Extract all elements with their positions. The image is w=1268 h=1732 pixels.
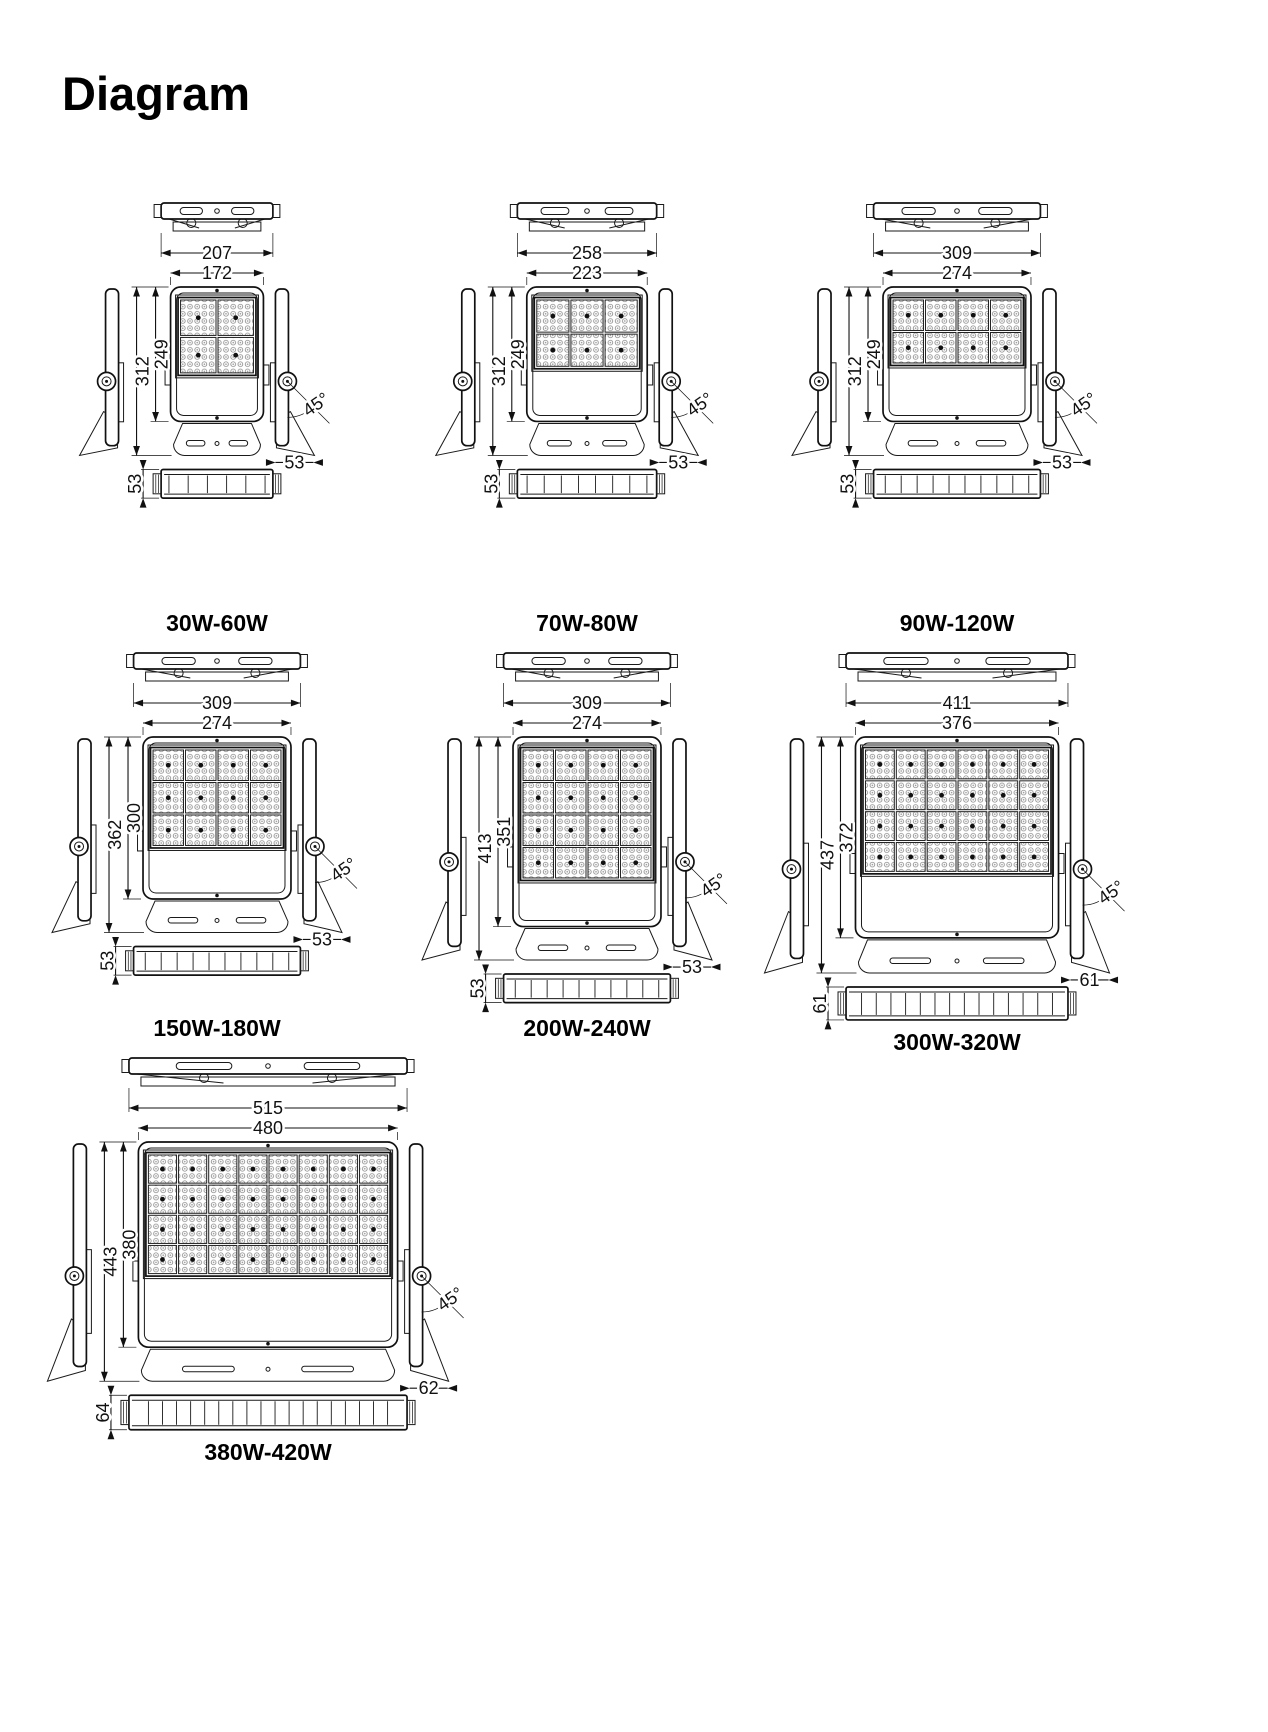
dim-outer-width: 309	[134, 693, 301, 713]
led-center-dot	[536, 795, 541, 800]
screw	[266, 1342, 270, 1346]
side-blade	[790, 739, 803, 958]
dim-label: 274	[572, 713, 602, 733]
dim-label: 411	[943, 693, 972, 713]
dim-bottom-height: 53	[125, 460, 146, 508]
led-center-dot	[251, 1197, 256, 1202]
side-blade	[303, 739, 316, 921]
led-center-dot	[1003, 313, 1008, 318]
led-center-dot	[251, 1167, 256, 1172]
screw	[585, 289, 589, 293]
dim-label: 249	[508, 339, 528, 369]
dim-label: 53	[98, 951, 118, 971]
dim-arrow	[697, 459, 707, 466]
dim-arrow	[120, 1142, 127, 1152]
side-blade	[462, 289, 475, 446]
led-center-dot	[1001, 762, 1006, 767]
led-center-dot	[939, 855, 944, 860]
end-knob	[300, 951, 308, 971]
dim-arrow	[171, 270, 181, 277]
mounting-foot	[146, 901, 288, 932]
dim-arrow	[254, 270, 264, 277]
led-center-dot	[1032, 762, 1037, 767]
dim-arrow	[711, 964, 721, 971]
dim-label: 312	[489, 356, 509, 386]
dim-inner-height: 300	[124, 737, 144, 899]
dim-arrow	[1081, 459, 1091, 466]
model-label: 380W-420W	[204, 1439, 332, 1465]
led-center-dot	[938, 313, 943, 318]
end-cap	[657, 205, 664, 218]
dim-arrow	[508, 412, 515, 422]
dim-label: 53	[682, 957, 702, 977]
mounting-foot	[516, 929, 658, 960]
led-center-dot	[166, 795, 171, 800]
diagram-cell-200w-240w: 30927441335145°5353200W-240W	[398, 645, 770, 1050]
dim-arrow	[263, 250, 273, 257]
led-center-dot	[601, 763, 606, 768]
led-center-dot	[190, 1257, 195, 1262]
diagram-drawing: 20717231224945°535330W-60W	[28, 195, 400, 645]
dim-label: 64	[93, 1402, 113, 1422]
dim-arrow	[101, 1142, 108, 1152]
dim-arrow	[161, 250, 171, 257]
foot-slot	[168, 917, 198, 923]
led-center-dot	[971, 313, 976, 318]
led-center-dot	[1032, 855, 1037, 860]
dim-arrow	[313, 459, 323, 466]
dim-label: 258	[572, 243, 602, 263]
bottom-view	[866, 469, 1049, 498]
bracket-bar	[129, 1058, 407, 1074]
led-center-dot	[878, 855, 883, 860]
dim-label: 53	[481, 474, 501, 494]
bottom-view	[126, 946, 309, 975]
bracket-bar	[134, 653, 301, 669]
led-center-dot	[190, 1227, 195, 1232]
foot-slot	[538, 945, 568, 951]
end-knob	[866, 474, 874, 494]
dim-inner-height: 249	[152, 287, 172, 421]
end-cap	[510, 205, 517, 218]
led-center-dot	[1032, 793, 1037, 798]
screw	[955, 441, 959, 445]
led-center-dot	[906, 313, 911, 318]
dim-label: 309	[202, 693, 232, 713]
dim-arrow	[152, 287, 159, 297]
dim-label: 45°	[1067, 388, 1101, 420]
dim-inner-width: 274	[143, 713, 291, 733]
dim-arrow	[496, 460, 503, 470]
dim-arrow	[837, 737, 844, 747]
dim-outer-height: 312	[489, 287, 509, 455]
led-center-dot	[341, 1257, 346, 1262]
dim-arrow	[489, 446, 496, 456]
dim-label: 380	[119, 1230, 139, 1260]
led-center-dot	[536, 763, 541, 768]
dim-arrow	[504, 700, 514, 707]
dim-outer-height: 312	[845, 287, 865, 455]
led-center-dot	[568, 763, 573, 768]
dim-label: 515	[253, 1098, 283, 1118]
dim-arrow	[852, 460, 859, 470]
led-center-dot	[550, 314, 555, 319]
end-cap	[1040, 205, 1047, 218]
dim-inner-height: 249	[508, 287, 528, 421]
screw	[215, 739, 219, 743]
dim-arrow	[106, 923, 113, 933]
screw	[266, 1367, 270, 1371]
dim-arrow	[266, 459, 276, 466]
dim-arrow	[846, 700, 856, 707]
diagram-drawing: 30927431224945°535390W-120W	[768, 195, 1140, 645]
led-center-dot	[601, 795, 606, 800]
led-center-dot	[971, 345, 976, 350]
led-center-dot	[190, 1197, 195, 1202]
left-side-view	[422, 739, 466, 960]
dim-outer-width: 515	[129, 1098, 407, 1118]
led-center-dot	[1003, 345, 1008, 350]
led-center-dot	[371, 1257, 376, 1262]
foot-slot	[603, 440, 627, 446]
dim-arrow	[865, 412, 872, 422]
screw	[215, 416, 219, 420]
dim-inner-height: 351	[494, 737, 514, 927]
drawing-root: 30927441335145°5353	[422, 653, 730, 1012]
dim-label: 312	[133, 356, 153, 386]
dim-arrow	[112, 937, 119, 947]
mounting-foot	[530, 423, 644, 455]
foot-slot	[606, 945, 636, 951]
led-center-dot	[166, 763, 171, 768]
dim-arrow	[143, 720, 153, 727]
led-center-dot	[908, 793, 913, 798]
side-blade	[73, 1144, 86, 1366]
bottom-view	[509, 469, 664, 498]
led-center-dot	[311, 1167, 316, 1172]
led-center-dot	[263, 795, 268, 800]
led-center-dot	[160, 1227, 165, 1232]
led-center-dot	[878, 762, 883, 767]
model-label: 200W-240W	[523, 1015, 651, 1041]
dim-outer-width: 411	[846, 693, 1068, 713]
led-center-dot	[231, 763, 236, 768]
screw	[215, 441, 219, 445]
dim-label: 45°	[683, 388, 717, 420]
page: Diagram 20717231224945°535330W-60W 25822…	[0, 0, 1268, 1732]
screw	[955, 416, 959, 420]
led-center-dot	[633, 828, 638, 833]
page-title: Diagram	[62, 66, 250, 121]
led-center-dot	[1001, 855, 1006, 860]
foot-slot	[890, 958, 931, 964]
dim-inner-width: 223	[527, 263, 647, 283]
top-view	[510, 203, 663, 231]
diagram-drawing: 41137643737245°6161300W-320W	[768, 645, 1140, 1050]
bottom-view	[121, 1395, 415, 1430]
dim-label: 249	[152, 339, 172, 369]
led-center-dot	[198, 795, 203, 800]
screw	[955, 739, 959, 743]
dim-inner-width: 274	[513, 713, 661, 733]
dim-label: 309	[942, 243, 972, 263]
led-center-dot	[585, 348, 590, 353]
dim-label: 413	[475, 833, 495, 863]
led-center-dot	[939, 824, 944, 829]
top-view	[154, 203, 280, 231]
dim-arrow	[134, 700, 144, 707]
dim-outer-height: 312	[133, 287, 153, 455]
end-knob	[838, 992, 846, 1015]
dim-label: 53	[125, 474, 145, 494]
diagram-drawing: 51548044338045°6264380W-420W	[30, 1050, 500, 1470]
drawing-root: 51548044338045°6264	[47, 1058, 467, 1439]
top-view	[497, 653, 678, 681]
dim-label: 376	[942, 713, 972, 733]
drawing-root: 25822331224945°5353	[436, 203, 717, 508]
dim-arrow	[398, 1105, 408, 1112]
dim-arrow	[517, 250, 527, 257]
led-center-dot	[371, 1227, 376, 1232]
led-center-dot	[619, 314, 624, 319]
dim-label: 274	[942, 263, 972, 283]
right-side-view	[298, 739, 342, 932]
dim-label: 443	[100, 1247, 120, 1277]
side-blade	[410, 1144, 423, 1366]
dim-inner-width: 274	[883, 263, 1031, 283]
right-side-view	[1038, 289, 1082, 455]
led-center-dot	[568, 860, 573, 865]
led-center-dot	[198, 828, 203, 833]
dim-arrow	[482, 965, 489, 975]
bracket-bar	[517, 203, 656, 219]
side-blade	[1071, 739, 1084, 958]
left-side-view	[80, 289, 124, 455]
diagram-drawing: 25822331224945°535370W-80W	[398, 195, 770, 645]
foot-slot	[547, 440, 571, 446]
dim-outer-height: 413	[475, 737, 495, 960]
screw	[585, 921, 589, 925]
top-view	[127, 653, 308, 681]
dim-label: 172	[202, 263, 232, 283]
left-side-view	[436, 289, 480, 455]
led-center-dot	[970, 855, 975, 860]
diagram-cell-150w-180w: 30927436230045°5353150W-180W	[28, 645, 400, 1050]
diagram-cell-90w-120w: 30927431224945°535390W-120W	[768, 195, 1140, 645]
led-center-dot	[906, 345, 911, 350]
foot-slot	[302, 1366, 354, 1372]
dim-label: 309	[572, 693, 602, 713]
dim-outer-width: 309	[874, 243, 1041, 263]
dim-arrow	[291, 700, 301, 707]
left-side-view	[47, 1144, 91, 1381]
led-center-dot	[908, 762, 913, 767]
led-center-dot	[220, 1197, 225, 1202]
led-center-dot	[939, 762, 944, 767]
dim-inner-width: 376	[855, 713, 1058, 733]
dim-outer-width: 309	[504, 693, 671, 713]
dim-arrow	[846, 446, 853, 456]
foot-slot	[976, 440, 1006, 446]
dim-label: 53	[468, 978, 488, 998]
dim-label: 480	[253, 1118, 283, 1138]
drawing-root: 30927431224945°5353	[792, 203, 1100, 508]
led-center-dot	[908, 855, 913, 860]
dim-outer-width: 207	[161, 243, 273, 263]
dim-label: 45°	[1094, 876, 1128, 908]
front-body	[138, 1142, 397, 1347]
led-center-dot	[190, 1167, 195, 1172]
dim-label: 207	[202, 243, 232, 263]
led-center-dot	[196, 353, 201, 358]
dim-arrow	[865, 287, 872, 297]
diagram-cell-30w-60w: 20717231224945°535330W-60W	[28, 195, 400, 645]
dim-arrow	[133, 446, 140, 456]
dim-arrow	[108, 1386, 115, 1396]
top-view	[867, 203, 1048, 231]
led-center-dot	[970, 762, 975, 767]
right-side-view	[654, 289, 698, 455]
led-center-dot	[160, 1167, 165, 1172]
dim-arrow	[101, 1372, 108, 1382]
dim-label: 351	[494, 817, 514, 847]
dim-label: 45°	[327, 854, 361, 886]
dim-arrow	[482, 1003, 489, 1013]
foot-slot	[186, 440, 205, 446]
dim-arrow	[400, 1385, 410, 1392]
left-side-view	[792, 289, 836, 455]
model-label: 90W-120W	[900, 610, 1015, 636]
end-knob	[496, 978, 504, 998]
dim-arrow	[129, 1105, 139, 1112]
led-center-dot	[251, 1227, 256, 1232]
dim-arrow	[495, 737, 502, 747]
dim-arrow	[1058, 700, 1068, 707]
led-center-dot	[908, 824, 913, 829]
mounting-foot	[141, 1349, 394, 1381]
dim-outer-width: 258	[517, 243, 656, 263]
dim-arrow	[448, 1385, 458, 1392]
dim-arrow	[106, 737, 113, 747]
led-center-dot	[601, 828, 606, 833]
side-blade	[275, 289, 288, 446]
end-knob	[273, 474, 281, 494]
led-center-dot	[633, 763, 638, 768]
diagram-drawing: 30927436230045°5353150W-180W	[28, 645, 400, 1050]
bracket-bar	[504, 653, 671, 669]
end-knob	[1068, 992, 1076, 1015]
end-cap	[1068, 655, 1075, 668]
led-center-dot	[878, 793, 883, 798]
led-center-dot	[585, 314, 590, 319]
end-knob	[657, 474, 665, 494]
led-center-dot	[231, 795, 236, 800]
dim-arrow	[825, 977, 832, 987]
mounting-foot	[174, 423, 261, 455]
end-knob	[1040, 474, 1048, 494]
dim-arrow	[112, 975, 119, 985]
dim-arrow	[152, 412, 159, 422]
dim-arrow	[508, 287, 515, 297]
led-center-dot	[1032, 824, 1037, 829]
dim-outer-height: 443	[100, 1142, 120, 1381]
model-label: 70W-80W	[536, 610, 638, 636]
led-center-dot	[263, 763, 268, 768]
dim-arrow	[496, 498, 503, 508]
led-center-dot	[938, 345, 943, 350]
led-center-dot	[1001, 793, 1006, 798]
led-center-dot	[536, 828, 541, 833]
screw	[955, 289, 959, 293]
dim-label: 362	[105, 820, 125, 850]
led-center-dot	[371, 1197, 376, 1202]
dim-inner-height: 380	[119, 1142, 139, 1347]
led-center-dot	[550, 348, 555, 353]
dim-outer-height: 362	[105, 737, 125, 932]
dim-arrow	[1021, 270, 1031, 277]
led-center-dot	[160, 1257, 165, 1262]
screw	[585, 416, 589, 420]
dim-arrow	[818, 737, 825, 747]
side-blade	[659, 289, 672, 446]
dim-bottom-height: 64	[93, 1386, 114, 1440]
led-center-dot	[220, 1257, 225, 1262]
dim-inner-width: 172	[171, 263, 264, 283]
dim-arrow	[1033, 459, 1043, 466]
right-side-view	[1066, 739, 1110, 973]
dim-label: 61	[1080, 970, 1100, 990]
top-view	[839, 653, 1075, 681]
screw	[585, 739, 589, 743]
diagram-cell-380w-420w: 51548044338045°6264380W-420W	[30, 1050, 500, 1470]
led-center-dot	[231, 828, 236, 833]
left-side-view	[764, 739, 808, 973]
diagram-drawing: 30927441335145°5353200W-240W	[398, 645, 770, 1050]
led-center-dot	[196, 315, 201, 320]
dim-label: 45°	[697, 869, 731, 901]
foot-slot	[983, 958, 1024, 964]
dim-label: 274	[202, 713, 232, 733]
dim-arrow	[1109, 977, 1119, 984]
mounting-foot	[858, 940, 1055, 973]
end-cap	[127, 655, 134, 668]
dim-arrow	[281, 720, 291, 727]
dim-arrow	[341, 936, 351, 943]
end-knob	[407, 1400, 415, 1424]
dim-arrow	[1031, 250, 1041, 257]
led-center-dot	[970, 793, 975, 798]
led-center-dot	[311, 1197, 316, 1202]
dim-arrow	[388, 1125, 398, 1132]
dim-arrow	[883, 270, 893, 277]
foot-slot	[908, 440, 938, 446]
dim-bottom-height: 53	[468, 965, 489, 1013]
led-center-dot	[878, 824, 883, 829]
led-center-dot	[536, 860, 541, 865]
screw	[215, 289, 219, 293]
led-center-dot	[198, 763, 203, 768]
dim-inner-height: 372	[836, 737, 856, 938]
screw	[585, 441, 589, 445]
dim-arrow	[495, 917, 502, 927]
dim-arrow	[661, 700, 671, 707]
diagram-cell-300w-320w: 41137643737245°6161300W-320W	[768, 645, 1140, 1050]
led-center-dot	[568, 828, 573, 833]
led-center-dot	[341, 1197, 346, 1202]
model-label: 30W-60W	[166, 610, 268, 636]
dim-arrow	[476, 951, 483, 961]
dim-arrow	[489, 287, 496, 297]
